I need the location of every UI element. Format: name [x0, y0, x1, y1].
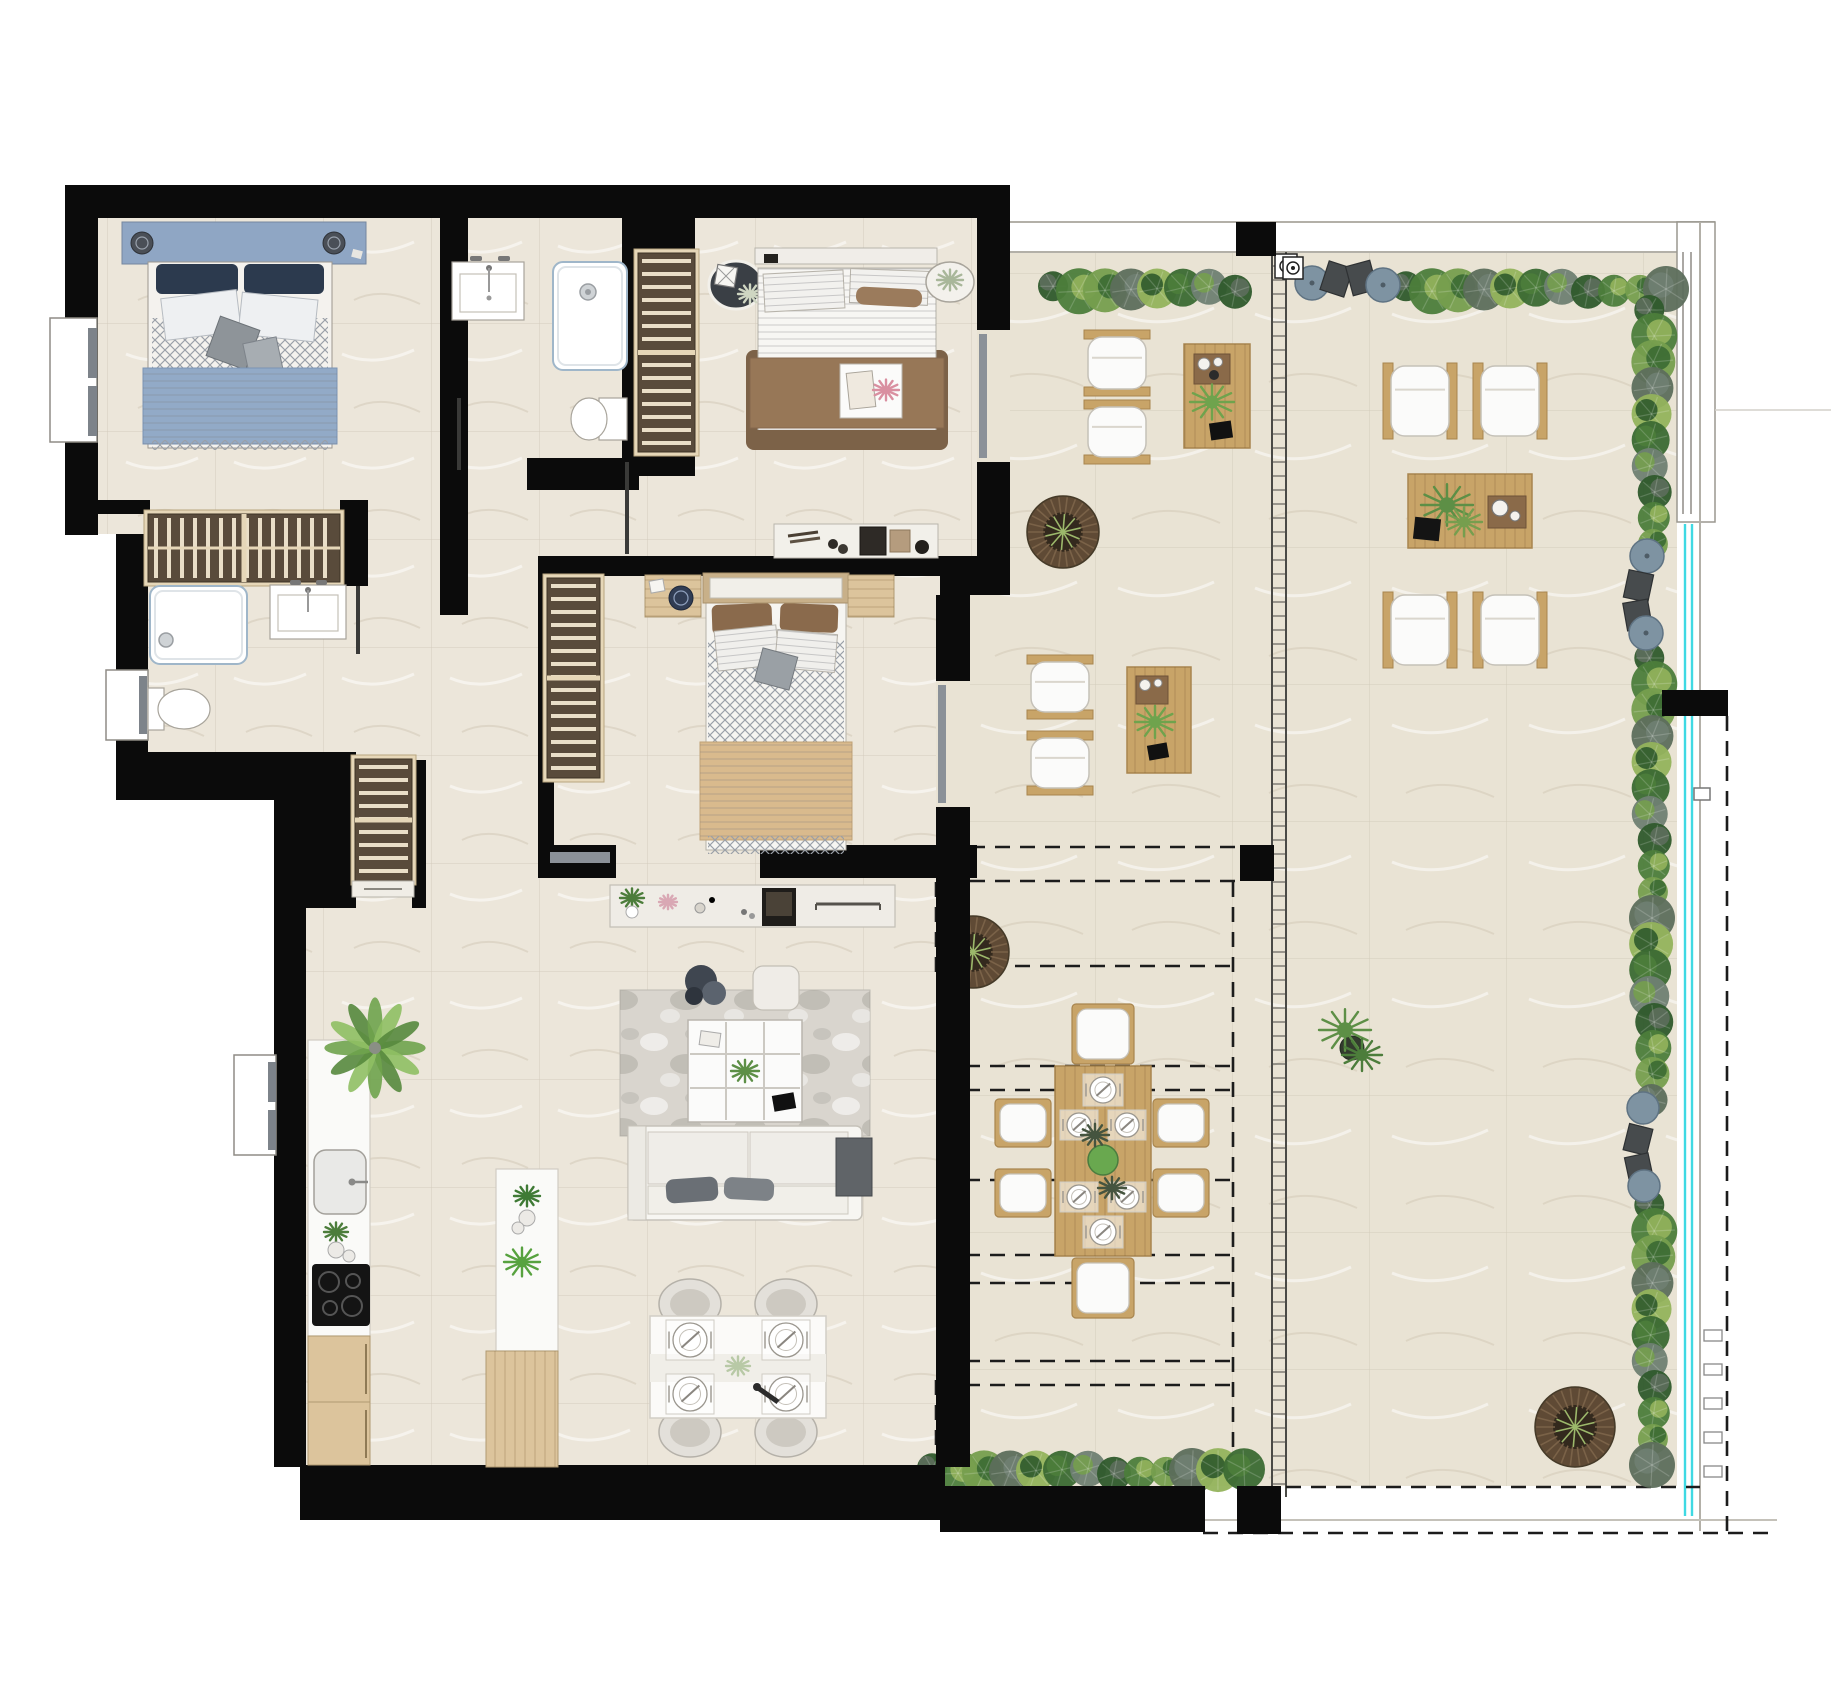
coffee-table-b	[1127, 667, 1191, 773]
shower-bathroom-2	[150, 586, 247, 664]
terrace-top-parapet	[1010, 222, 1715, 252]
sofa	[628, 1126, 872, 1220]
lounge-chair-a2	[1084, 400, 1150, 464]
bed-bedroom-2	[746, 248, 948, 450]
window-bedroom-1	[50, 318, 97, 442]
coffee-table-c	[1408, 474, 1532, 548]
outdoor-dining-chair-w2	[995, 1169, 1051, 1217]
nightstand-bedroom2-left	[709, 261, 763, 309]
lounge-chair-b2	[1027, 731, 1093, 795]
shower-bathroom-1	[553, 262, 627, 370]
round-planter-terrace-left	[1027, 496, 1099, 568]
floor-plan-svg	[0, 0, 1831, 1704]
outdoor-dining-chair-e2	[1153, 1169, 1209, 1217]
lounge-chair-a1	[1084, 330, 1150, 396]
window-kitchen	[234, 1055, 276, 1155]
bed-bedroom-1	[122, 222, 366, 450]
hallway-closet	[351, 755, 416, 897]
vanity-bathroom-1	[452, 256, 524, 320]
outdoor-dining-table	[1055, 1066, 1151, 1256]
sliding-door-bedroom2-terrace	[977, 330, 1010, 462]
bench-bedroom-3	[848, 575, 894, 617]
outdoor-dining-chair-head-s	[1072, 1258, 1134, 1318]
outdoor-dining-chair-w1	[995, 1099, 1051, 1147]
armchair-c3	[1383, 592, 1457, 668]
round-planter-bottom-right	[1535, 1387, 1615, 1467]
desk-bedroom-3	[645, 575, 701, 617]
wardrobe-bedroom-1	[144, 510, 344, 586]
terrace-drain-fixture	[1283, 257, 1303, 279]
outdoor-dining-chair-head-n	[1072, 1004, 1134, 1064]
coffee-table-a	[1184, 344, 1250, 448]
console-bedroom-2	[774, 524, 938, 558]
armchair-c1	[1383, 363, 1457, 439]
kitchen-base-cabinets	[308, 1336, 370, 1465]
kitchen-island	[486, 1169, 558, 1467]
toilet-bathroom-2	[148, 688, 210, 730]
vanity-bathroom-2	[270, 580, 346, 639]
outdoor-dining-chair-e1	[1153, 1099, 1209, 1147]
bed-bedroom-3	[700, 573, 852, 854]
nightstand-bedroom2-right	[926, 262, 974, 302]
sliding-door-living-terrace	[936, 681, 970, 807]
armchair-c2	[1473, 363, 1547, 439]
window-bathroom-2	[106, 670, 148, 740]
entrance-door	[550, 852, 610, 863]
tv-console-living	[610, 885, 895, 927]
wardrobe-bedroom-2	[634, 249, 699, 456]
living-pouf	[753, 966, 799, 1010]
toilet-bathroom-1	[571, 398, 627, 440]
floor-plan-page	[0, 0, 1831, 1704]
lounge-chair-b1	[1027, 655, 1093, 719]
wardrobe-bedroom-3	[543, 574, 604, 782]
glass-coffee-table	[688, 1020, 802, 1122]
armchair-c4	[1473, 592, 1547, 668]
